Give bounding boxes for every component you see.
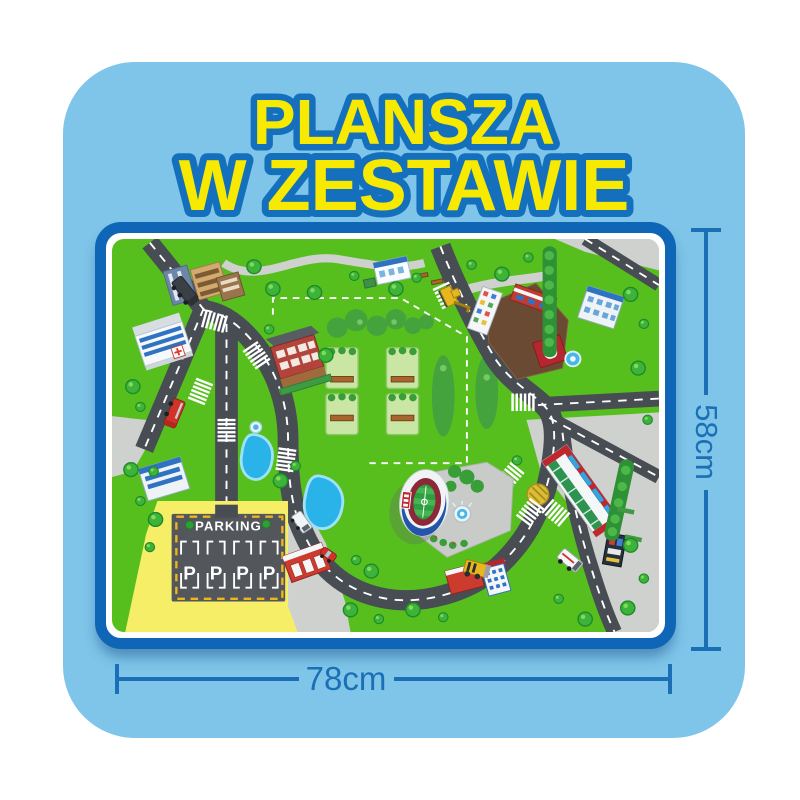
roundabout-marking — [527, 484, 549, 505]
title-block: PLANSZA W ZESTAWIE — [63, 62, 745, 222]
fountain-small — [250, 422, 261, 433]
height-dim-cap-bottom — [691, 647, 721, 651]
width-dim-label: 78cm — [306, 660, 387, 698]
play-mat-frame: PARKING P P P P — [112, 239, 659, 632]
width-dim-line-right — [394, 677, 670, 681]
play-mat-scene: PARKING P P P P — [112, 239, 659, 632]
width-dim-line-left — [117, 677, 299, 681]
svg-text:P: P — [183, 563, 196, 584]
height-dim-line-top — [704, 230, 708, 395]
svg-text:P: P — [236, 563, 249, 584]
height-dim-label: 58cm — [688, 404, 724, 480]
play-mat-image: PARKING P P P P — [95, 222, 676, 649]
svg-text:P: P — [210, 563, 223, 584]
mall-fountain — [565, 352, 580, 367]
parking-sign-text: PARKING — [195, 519, 262, 534]
title-line-2: W ZESTAWIE — [179, 146, 630, 226]
svg-text:P: P — [263, 563, 276, 584]
height-dim-line-bottom — [704, 490, 708, 649]
width-dim-cap-right — [668, 664, 672, 694]
